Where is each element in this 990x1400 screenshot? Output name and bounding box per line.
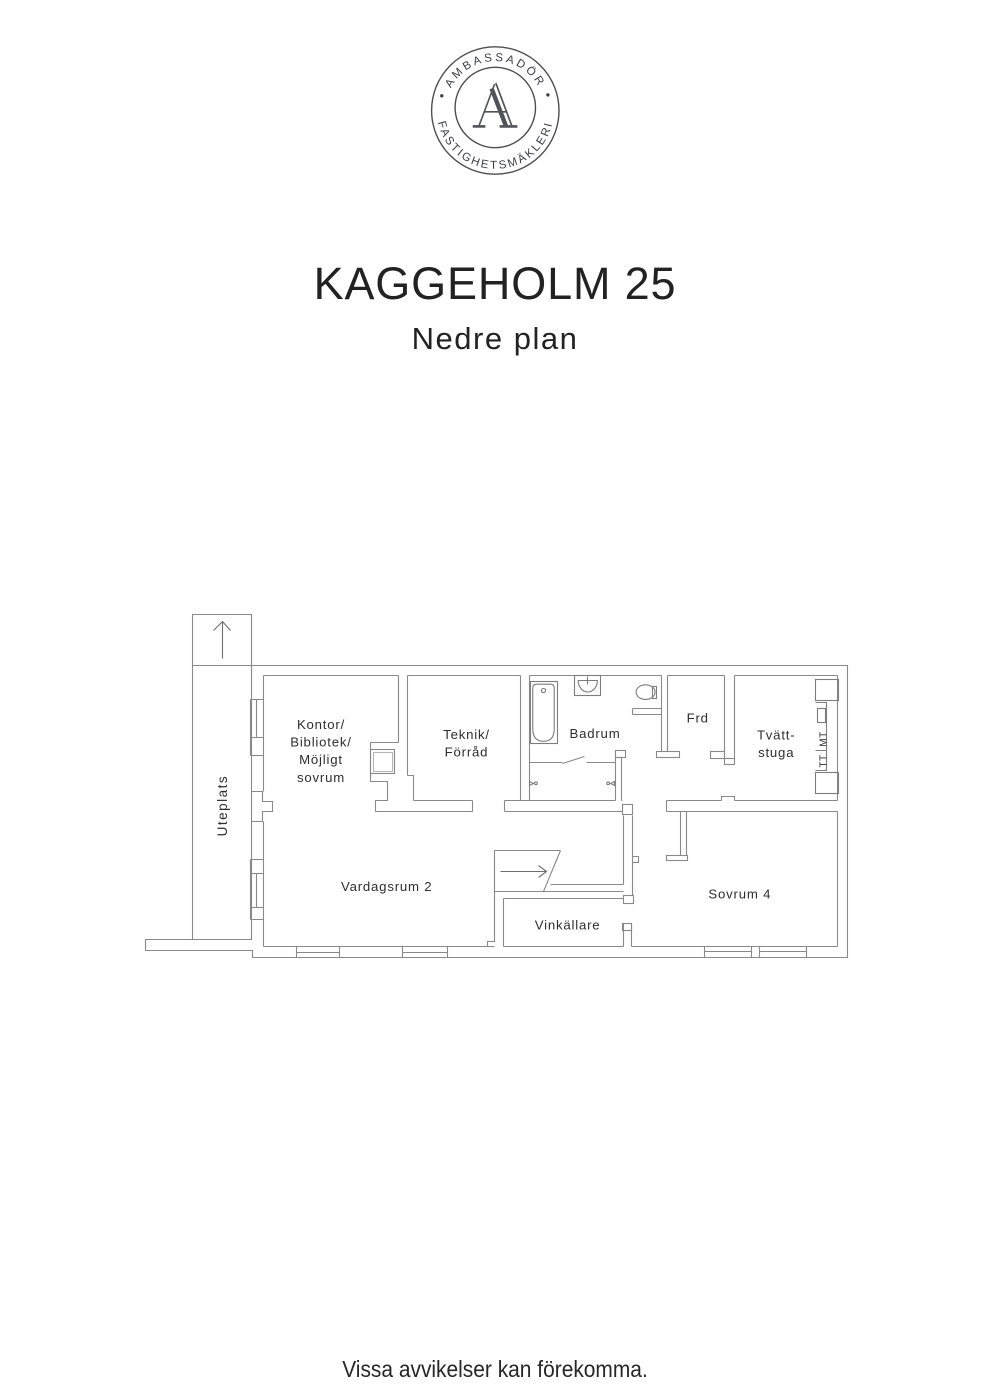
- svg-text:Frd: Frd: [687, 711, 709, 726]
- svg-text:Tvätt-stuga: Tvätt-stuga: [757, 728, 796, 761]
- svg-text:Sovrum 4: Sovrum 4: [708, 887, 771, 902]
- svg-text:Uteplats: Uteplats: [215, 775, 230, 837]
- svg-text:Kontor/Bibliotek/Möjligtsovrum: Kontor/Bibliotek/Möjligtsovrum: [290, 717, 352, 785]
- svg-text:Teknik/Förråd: Teknik/Förråd: [443, 727, 490, 760]
- svg-text:Vinkällare: Vinkällare: [535, 918, 601, 933]
- svg-text:Badrum: Badrum: [570, 726, 621, 741]
- svg-text:MT: MT: [818, 731, 829, 746]
- svg-text:Vardagsrum 2: Vardagsrum 2: [341, 879, 432, 894]
- svg-text:TT: TT: [818, 754, 829, 767]
